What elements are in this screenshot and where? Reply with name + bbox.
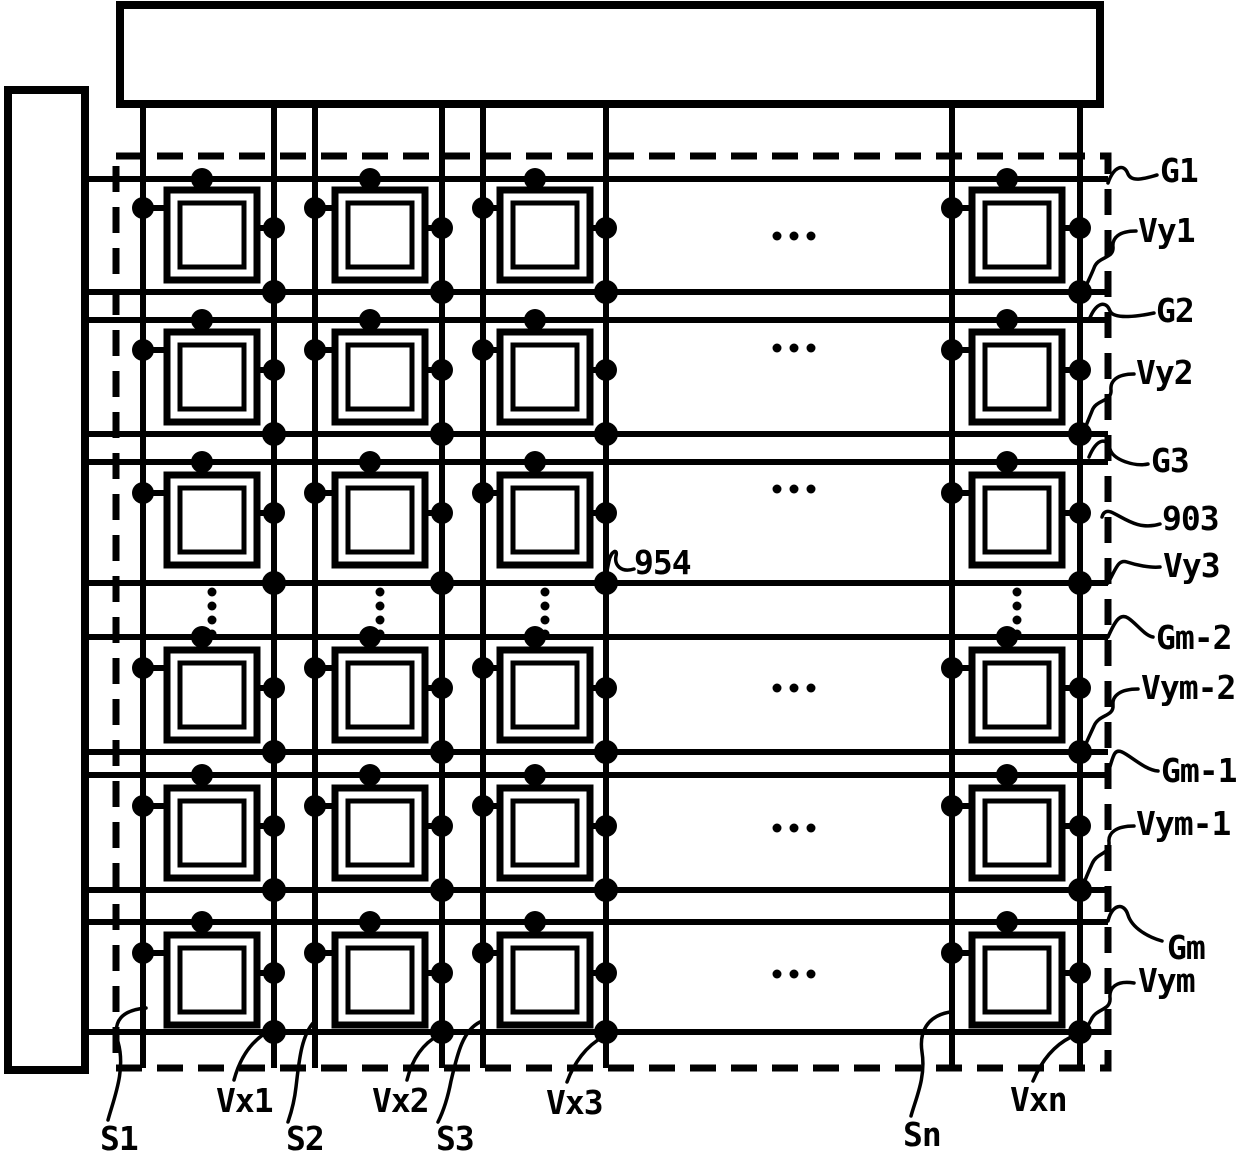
col-ellipsis-dot-c4 xyxy=(1013,602,1022,611)
vx-contact-dot xyxy=(1069,962,1091,984)
source-contact-dot xyxy=(941,339,963,361)
source-contact-dot xyxy=(304,942,326,964)
label-vy-line-vy2: Vy2 xyxy=(1136,356,1193,389)
vy-vx-junction-dot xyxy=(1068,878,1092,902)
vy-vx-junction-dot xyxy=(594,878,618,902)
row-ellipsis-dot-r6 xyxy=(790,970,799,979)
vx-contact-dot xyxy=(263,962,285,984)
label-gate-line-gm-1: Gm-1 xyxy=(1161,754,1236,787)
gate-contact-dot xyxy=(524,168,546,190)
gate-contact-dot xyxy=(191,309,213,331)
pixel-cell-r3-c4 xyxy=(941,451,1092,595)
row-ellipsis-dot-r3 xyxy=(790,485,799,494)
pixel-cell-r6-c2 xyxy=(304,911,454,1044)
gate-contact-dot xyxy=(996,451,1018,473)
source-contact-dot xyxy=(472,482,494,504)
vy-vx-junction-dot xyxy=(594,280,618,304)
gate-contact-dot xyxy=(996,309,1018,331)
label-vx-line-vx1: Vx1 xyxy=(216,1084,273,1117)
vy-vx-junction-dot xyxy=(594,422,618,446)
gate-contact-dot xyxy=(191,764,213,786)
vy-vx-junction-dot xyxy=(594,740,618,764)
pixel-cell-r2-c3 xyxy=(472,309,618,446)
label-vy-line-vym-2: Vym-2 xyxy=(1141,671,1235,704)
label-source-line-sn: Sn xyxy=(903,1118,941,1151)
leader-Sn xyxy=(911,1012,950,1116)
label-vy-line-vy3: Vy3 xyxy=(1163,549,1220,582)
row-ellipsis-dot-r3 xyxy=(773,485,782,494)
source-contact-dot xyxy=(472,795,494,817)
vx-contact-dot xyxy=(595,359,617,381)
pixel-cell-r3-c3 xyxy=(472,451,618,595)
col-ellipsis-dot-c1 xyxy=(208,630,217,639)
vx-contact-dot xyxy=(431,502,453,524)
vx-contact-dot xyxy=(1069,217,1091,239)
leader-Gm-1 xyxy=(1107,751,1158,776)
label-ref-954: 954 xyxy=(634,546,691,579)
source-contact-dot xyxy=(472,339,494,361)
pixel-array-diagram-art xyxy=(0,0,1240,1161)
pixel-cell-r2-c2 xyxy=(304,309,454,446)
row-ellipsis-dot-r2 xyxy=(773,344,782,353)
vx-contact-dot xyxy=(263,217,285,239)
vx-contact-dot xyxy=(595,962,617,984)
gate-contact-dot xyxy=(359,309,381,331)
pixel-cell-r1-c2 xyxy=(304,168,454,304)
vy-vx-junction-dot xyxy=(262,878,286,902)
vx-contact-dot xyxy=(595,502,617,524)
leader-Vxn xyxy=(1033,1037,1071,1081)
row-ellipsis-dot-r4 xyxy=(807,684,816,693)
source-contact-dot xyxy=(132,197,154,219)
col-ellipsis-dot-c3 xyxy=(541,602,550,611)
row-ellipsis-dot-r1 xyxy=(790,232,799,241)
label-vx-line-vx2: Vx2 xyxy=(372,1084,429,1117)
source-contact-dot xyxy=(304,339,326,361)
vy-vx-junction-dot xyxy=(262,422,286,446)
col-ellipsis-dot-c2 xyxy=(376,588,385,597)
label-source-line-s3: S3 xyxy=(436,1122,474,1155)
row-ellipsis-dot-r5 xyxy=(790,824,799,833)
source-contact-dot xyxy=(941,657,963,679)
source-contact-dot xyxy=(132,657,154,679)
col-ellipsis-dot-c2 xyxy=(376,630,385,639)
pixel-cell-r6-c4 xyxy=(941,911,1092,1044)
pixel-cell-r3-c1 xyxy=(132,451,286,595)
vx-contact-dot xyxy=(431,359,453,381)
source-contact-dot xyxy=(941,197,963,219)
source-contact-dot xyxy=(304,795,326,817)
source-contact-dot xyxy=(472,657,494,679)
vy-vx-junction-dot xyxy=(430,280,454,304)
source-contact-dot xyxy=(472,942,494,964)
row-ellipsis-dot-r3 xyxy=(807,485,816,494)
vx-contact-dot xyxy=(595,677,617,699)
row-ellipsis-dot-r2 xyxy=(790,344,799,353)
source-contact-dot xyxy=(304,657,326,679)
pixel-cell-r6-c1 xyxy=(132,911,286,1044)
pixel-cell-r5-c3 xyxy=(472,764,618,902)
gate-contact-dot xyxy=(524,309,546,331)
pixel-cell-r5-c1 xyxy=(132,764,286,902)
vx-contact-dot xyxy=(595,217,617,239)
vx-contact-dot xyxy=(263,677,285,699)
row-ellipsis-dot-r1 xyxy=(807,232,816,241)
label-gate-line-g1: G1 xyxy=(1160,154,1198,187)
label-vy-line-vym-1: Vym-1 xyxy=(1136,807,1230,840)
vx-contact-dot xyxy=(1069,359,1091,381)
vy-vx-junction-dot xyxy=(262,571,286,595)
source-contact-dot xyxy=(132,482,154,504)
col-ellipsis-dot-c3 xyxy=(541,630,550,639)
gate-contact-dot xyxy=(191,168,213,190)
vx-contact-dot xyxy=(1069,502,1091,524)
gate-contact-dot xyxy=(996,764,1018,786)
gate-contact-dot xyxy=(524,764,546,786)
left-driver-block xyxy=(8,90,85,1070)
pixel-cell-r5-c4 xyxy=(941,764,1092,902)
vy-vx-junction-dot xyxy=(430,878,454,902)
pixel-cell-r6-c3 xyxy=(472,911,618,1044)
row-ellipsis-dot-r6 xyxy=(773,970,782,979)
source-contact-dot xyxy=(472,197,494,219)
patent-figure-pixel-array: G1 Vy1 G2 Vy2 G3 903 Vy3 Gm-2 Vym-2 Gm-1… xyxy=(0,0,1240,1161)
col-ellipsis-dot-c4 xyxy=(1013,588,1022,597)
leader-G1 xyxy=(1108,168,1157,183)
vx-contact-dot xyxy=(431,217,453,239)
vy-vx-junction-dot xyxy=(430,422,454,446)
label-vy-line-vy1: Vy1 xyxy=(1138,214,1195,247)
vy-vx-junction-dot xyxy=(262,280,286,304)
col-ellipsis-dot-c4 xyxy=(1013,616,1022,625)
pixel-cell-r1-c3 xyxy=(472,168,618,304)
pixel-cell-r2-c4 xyxy=(941,309,1092,446)
leader-Vy3 xyxy=(1108,561,1160,583)
label-vx-line-vx3: Vx3 xyxy=(546,1086,603,1119)
col-ellipsis-dot-c2 xyxy=(376,602,385,611)
label-vx-line-vxn: Vxn xyxy=(1010,1083,1067,1116)
label-gate-line-gm: Gm xyxy=(1167,931,1205,964)
vx-contact-dot xyxy=(595,815,617,837)
vx-contact-dot xyxy=(263,502,285,524)
pixel-cell-r4-c4 xyxy=(941,626,1092,764)
source-contact-dot xyxy=(132,942,154,964)
pixel-cell-r5-c2 xyxy=(304,764,454,902)
col-ellipsis-dot-c4 xyxy=(1013,630,1022,639)
gate-contact-dot xyxy=(996,168,1018,190)
pixel-cell-r1-c1 xyxy=(132,168,286,304)
pixel-cell-r3-c2 xyxy=(304,451,454,595)
row-ellipsis-dot-r4 xyxy=(773,684,782,693)
gate-contact-dot xyxy=(359,764,381,786)
vy-vx-junction-dot xyxy=(430,571,454,595)
col-ellipsis-dot-c3 xyxy=(541,588,550,597)
gate-contact-dot xyxy=(191,451,213,473)
source-contact-dot xyxy=(304,482,326,504)
vx-contact-dot xyxy=(431,962,453,984)
source-contact-dot xyxy=(941,482,963,504)
leader-Gm-2 xyxy=(1108,617,1153,637)
gate-contact-dot xyxy=(191,911,213,933)
pixel-cell-r1-c4 xyxy=(941,168,1092,304)
row-ellipsis-dot-r4 xyxy=(790,684,799,693)
gate-contact-dot xyxy=(524,911,546,933)
col-ellipsis-dot-c3 xyxy=(541,616,550,625)
gate-contact-dot xyxy=(359,168,381,190)
leader-Vx2 xyxy=(407,1035,439,1080)
vx-contact-dot xyxy=(431,677,453,699)
label-ref-903: 903 xyxy=(1162,502,1219,535)
pixel-cell-r4-c3 xyxy=(472,626,618,764)
label-gate-line-g2: G2 xyxy=(1156,294,1194,327)
label-vy-line-vym: Vym xyxy=(1138,964,1195,997)
vx-contact-dot xyxy=(1069,677,1091,699)
vy-vx-junction-dot xyxy=(1068,571,1092,595)
pixel-cell-r4-c2 xyxy=(304,626,454,764)
vx-contact-dot xyxy=(263,815,285,837)
row-ellipsis-dot-r5 xyxy=(807,824,816,833)
col-ellipsis-dot-c2 xyxy=(376,616,385,625)
vx-contact-dot xyxy=(1069,815,1091,837)
gate-contact-dot xyxy=(359,911,381,933)
row-ellipsis-dot-r5 xyxy=(773,824,782,833)
source-contact-dot xyxy=(941,942,963,964)
vy-vx-junction-dot xyxy=(1068,740,1092,764)
leader-S2 xyxy=(288,1022,314,1122)
gate-contact-dot xyxy=(996,911,1018,933)
row-ellipsis-dot-r1 xyxy=(773,232,782,241)
vx-contact-dot xyxy=(431,815,453,837)
vy-vx-junction-dot xyxy=(430,1020,454,1044)
col-ellipsis-dot-c1 xyxy=(208,616,217,625)
gate-contact-dot xyxy=(359,451,381,473)
label-gate-line-gm-2: Gm-2 xyxy=(1156,621,1231,654)
leader-Gm xyxy=(1108,907,1162,941)
top-driver-block xyxy=(120,5,1100,104)
row-ellipsis-dot-r6 xyxy=(807,970,816,979)
label-gate-line-g3: G3 xyxy=(1151,444,1189,477)
label-source-line-s2: S2 xyxy=(286,1122,324,1155)
vy-vx-junction-dot xyxy=(262,740,286,764)
vx-contact-dot xyxy=(263,359,285,381)
label-source-line-s1: S1 xyxy=(100,1122,138,1155)
source-contact-dot xyxy=(941,795,963,817)
source-contact-dot xyxy=(132,795,154,817)
gate-contact-dot xyxy=(524,451,546,473)
vy-vx-junction-dot xyxy=(430,740,454,764)
col-ellipsis-dot-c1 xyxy=(208,602,217,611)
vy-vx-junction-dot xyxy=(1068,422,1092,446)
row-ellipsis-dot-r2 xyxy=(807,344,816,353)
col-ellipsis-dot-c1 xyxy=(208,588,217,597)
pixel-cell-r4-c1 xyxy=(132,626,286,764)
source-contact-dot xyxy=(304,197,326,219)
continuation-ellipses xyxy=(208,232,1022,979)
pixel-cell-r2-c1 xyxy=(132,309,286,446)
leader-Vx3 xyxy=(567,1037,603,1082)
source-contact-dot xyxy=(132,339,154,361)
